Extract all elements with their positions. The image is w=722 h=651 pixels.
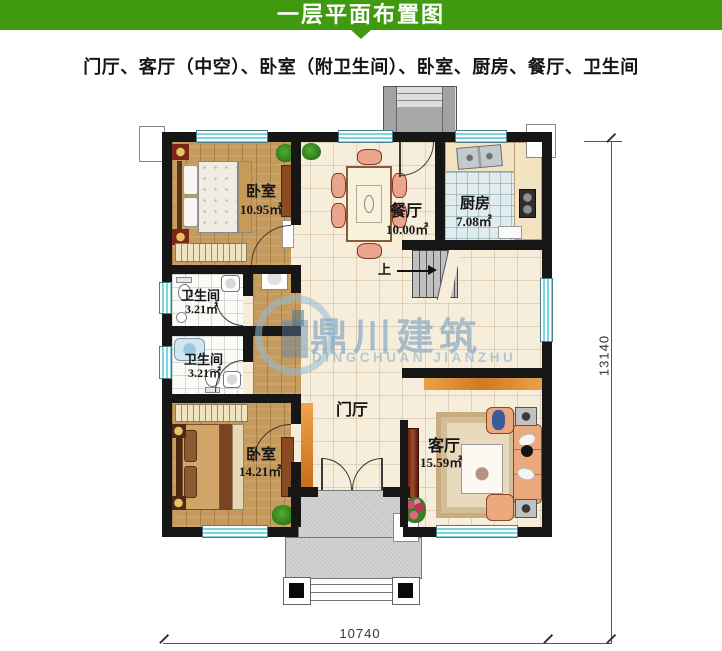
armchair	[486, 494, 514, 521]
wall	[243, 274, 253, 296]
room-label-kitchen: 厨房	[460, 192, 490, 213]
wardrobe	[175, 243, 247, 262]
column-core	[289, 583, 304, 598]
room-list-subtitle: 门厅、客厅（中空）、卧室（附卫生间）、卧室、厨房、餐厅、卫生间	[0, 53, 722, 79]
column-core	[398, 583, 413, 598]
kitchen-sink	[456, 144, 503, 170]
stove-icon	[519, 189, 536, 218]
dining-chair	[357, 243, 382, 259]
room-label-bedroom-top: 卧室	[246, 180, 276, 201]
nightstand-lamp	[171, 424, 186, 438]
porch-column	[392, 577, 420, 605]
stairs-up-label: 上	[378, 259, 391, 278]
floor-plan-page: 一层平面布置图 门厅、客厅（中空）、卧室（附卫生间）、卧室、厨房、餐厅、卫生间	[0, 0, 722, 651]
decor-wall-band	[424, 378, 542, 390]
dining-chair	[331, 173, 346, 198]
window	[540, 278, 553, 342]
dining-chair	[331, 203, 346, 228]
entry-porch-lower	[285, 537, 422, 579]
room-area-bath-lower: 3.21㎡	[188, 364, 221, 381]
room-area-bedroom-top: 10.95㎡	[240, 199, 282, 218]
porch-step-line	[397, 93, 442, 94]
wall	[291, 462, 301, 527]
wall	[291, 142, 301, 225]
bed-headboard	[177, 161, 182, 233]
window	[196, 130, 268, 143]
room-area-living: 15.59㎡	[420, 452, 462, 471]
corner-table	[515, 407, 537, 426]
wall	[243, 336, 253, 362]
header-pointer-triangle	[351, 30, 371, 39]
room-label-dining: 餐厅	[390, 197, 422, 221]
wall	[435, 142, 445, 240]
wardrobe	[175, 404, 248, 422]
toilet-tank	[176, 277, 192, 283]
dimension-width-label: 10740	[326, 626, 394, 641]
pillow	[183, 165, 198, 195]
dimension-height-label: 13140	[597, 322, 612, 390]
nightstand-lamp	[171, 496, 186, 510]
porch-step-line	[397, 100, 442, 101]
bed-duvet	[198, 161, 238, 233]
dimension-extension	[584, 141, 622, 142]
entry-steps	[310, 578, 393, 604]
window	[338, 130, 393, 143]
stair-direction-arrow	[397, 270, 430, 272]
dining-chair	[357, 149, 382, 165]
window	[455, 130, 507, 143]
window	[202, 525, 268, 538]
room-area-bedroom-bottom: 14.21㎡	[239, 461, 281, 480]
page-title: 一层平面布置图	[0, 0, 722, 30]
counter-appliance	[498, 226, 522, 239]
bed-foot-band	[220, 424, 232, 510]
step-line	[310, 592, 393, 593]
room-area-dining: 10.00㎡	[386, 219, 428, 238]
room-area-bath-upper: 3.21㎡	[185, 300, 218, 317]
wall	[402, 368, 552, 378]
decor-pier	[301, 403, 313, 487]
pillow	[183, 197, 198, 227]
person-figure	[492, 410, 505, 430]
room-label-foyer: 门厅	[336, 396, 368, 420]
plant-icon	[302, 143, 321, 160]
dimension-line-right	[611, 142, 612, 643]
pillow	[184, 466, 197, 498]
wall	[171, 326, 301, 336]
side-table	[521, 445, 533, 457]
step-line	[310, 600, 393, 601]
porch-column	[283, 577, 311, 605]
coffee-table	[461, 444, 503, 494]
entry-porch-upper	[298, 490, 403, 538]
wall	[291, 403, 301, 424]
wall	[402, 240, 542, 250]
step-line	[310, 584, 393, 585]
corner-table	[515, 499, 537, 518]
centerpiece	[364, 195, 374, 213]
wall	[162, 265, 301, 274]
room-area-kitchen: 7.08㎡	[456, 211, 492, 230]
arrow-head-icon	[428, 265, 437, 275]
window	[159, 282, 172, 314]
window	[159, 346, 172, 379]
wall	[291, 265, 301, 293]
nightstand-lamp	[172, 144, 189, 160]
wall	[162, 394, 301, 403]
window	[436, 525, 518, 538]
sink-icon	[221, 275, 240, 292]
wall	[400, 420, 408, 527]
